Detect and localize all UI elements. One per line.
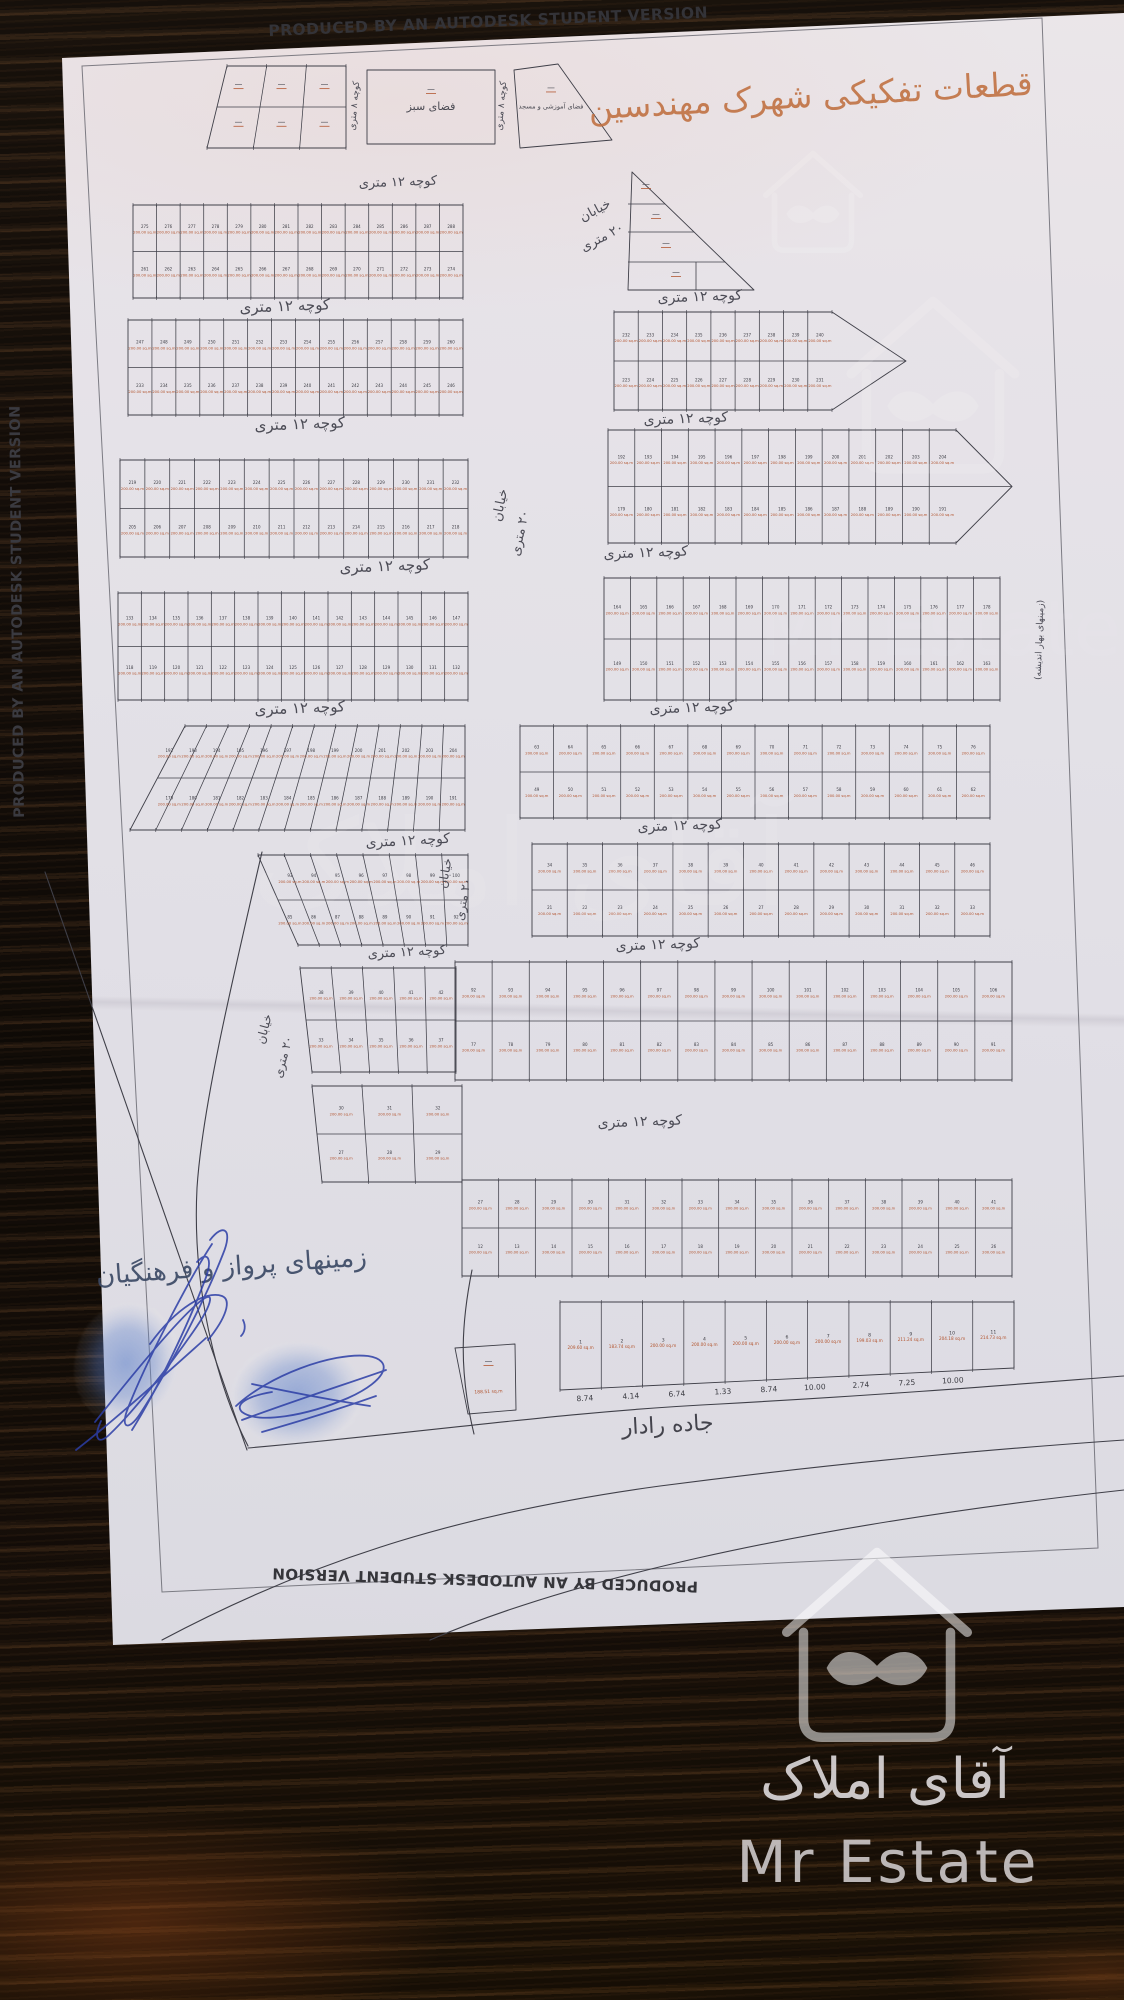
photo-of-subdivision-plan: PRODUCED BY AN AUTODESK STUDENT VERSION … bbox=[0, 0, 1124, 2000]
